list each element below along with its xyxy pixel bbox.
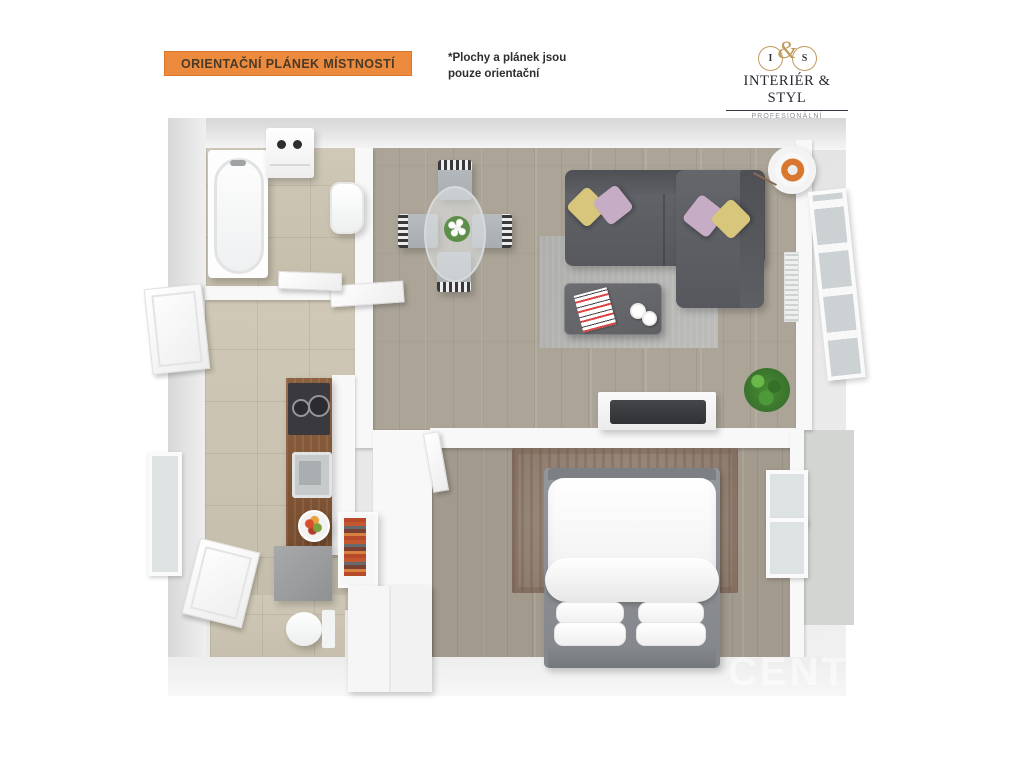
watermark-clip: CENT: [168, 118, 846, 696]
title-banner: ORIENTAČNÍ PLÁNEK MÍSTNOSTÍ: [164, 51, 412, 76]
title-banner-label: ORIENTAČNÍ PLÁNEK MÍSTNOSTÍ: [181, 57, 395, 71]
page: ORIENTAČNÍ PLÁNEK MÍSTNOSTÍ *Plochy a pl…: [0, 0, 1024, 768]
disclaimer-line-2: pouze orientační: [448, 67, 566, 83]
logo-name: INTERIÉR & STYL: [726, 72, 848, 111]
watermark: CENT: [728, 650, 846, 695]
logo-monogram-icon: I & S: [755, 42, 819, 72]
disclaimer-note: *Plochy a plánek jsou pouze orientační: [448, 51, 566, 82]
floorplan: CENT: [160, 112, 864, 712]
disclaimer-line-1: *Plochy a plánek jsou: [448, 51, 566, 67]
monogram-right-circle: S: [792, 46, 817, 71]
